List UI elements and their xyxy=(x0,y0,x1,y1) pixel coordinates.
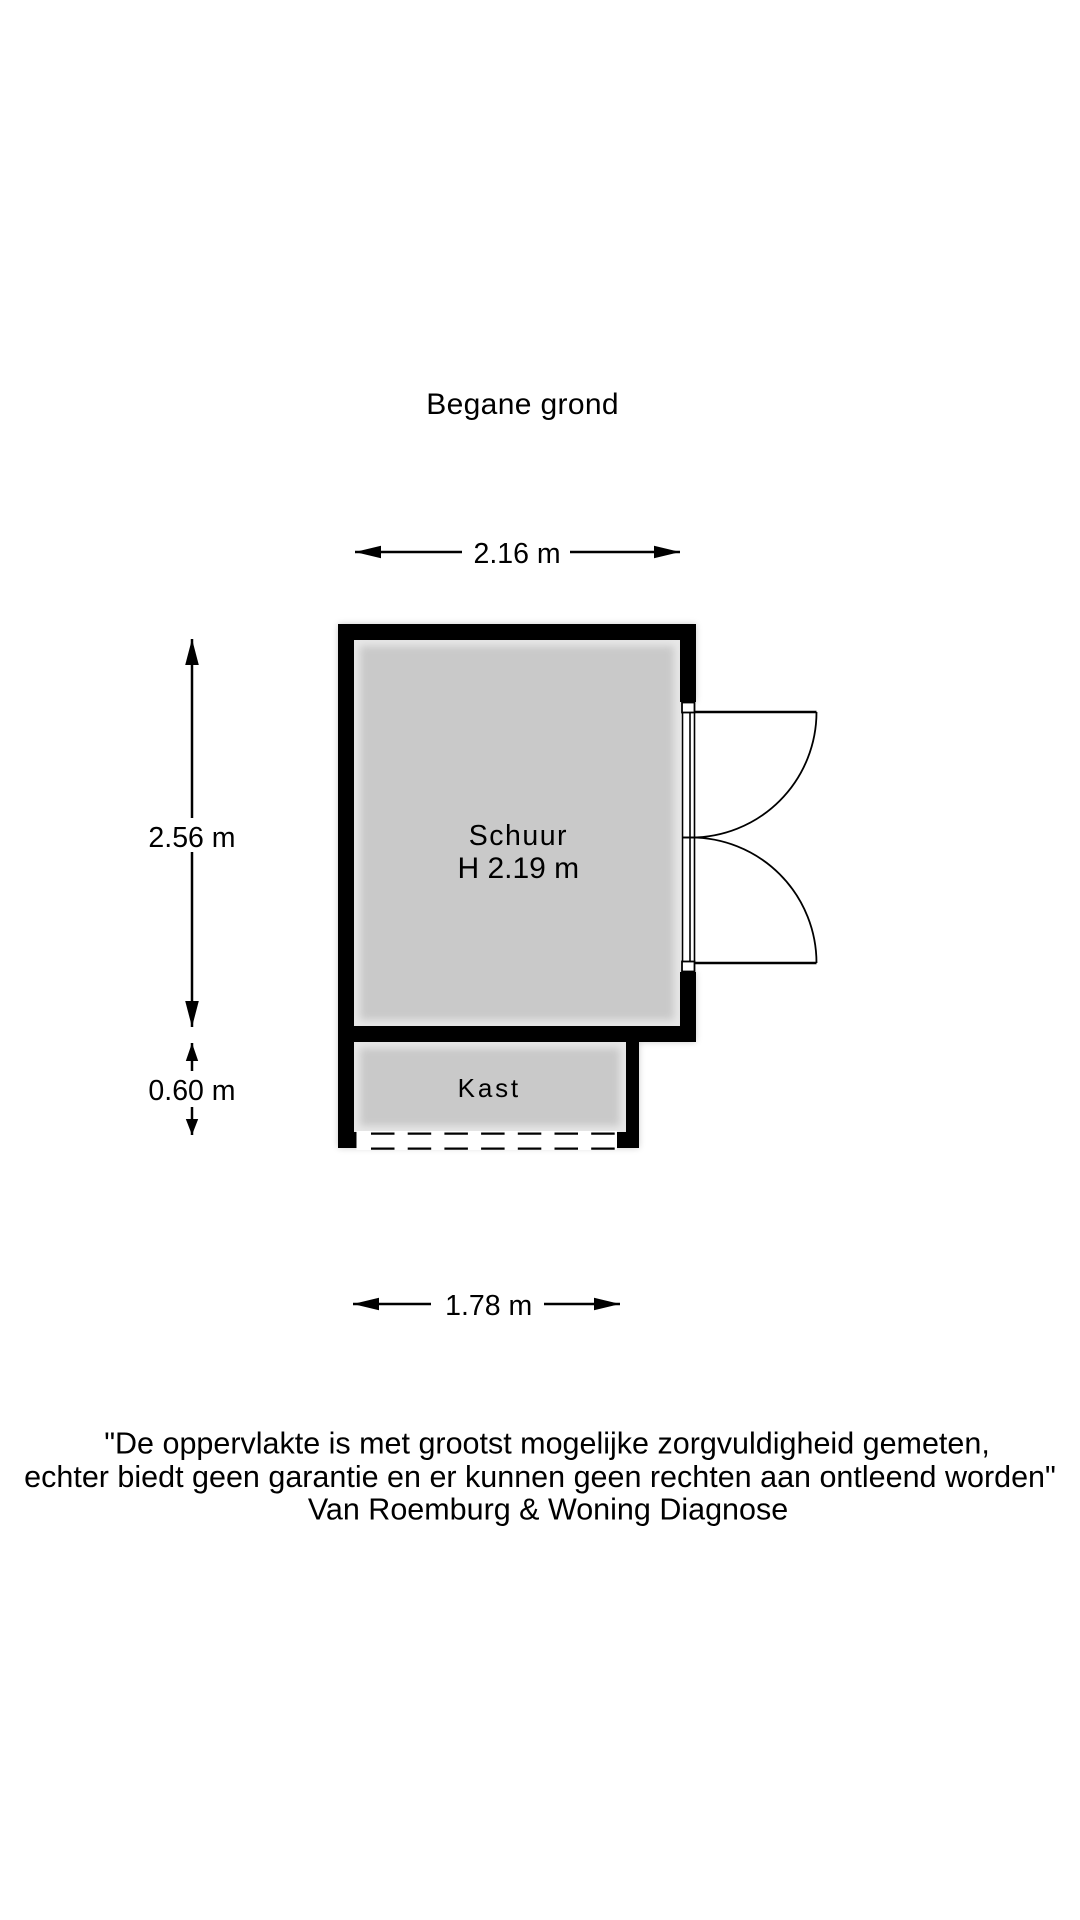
svg-text:2.56 m: 2.56 m xyxy=(148,822,235,854)
svg-text:1.78 m: 1.78 m xyxy=(445,1290,532,1322)
svg-text:Kast: Kast xyxy=(458,1073,521,1103)
svg-text:echter biedt geen garantie en: echter biedt geen garantie en er kunnen … xyxy=(24,1460,1056,1494)
svg-text:2.16 m: 2.16 m xyxy=(474,538,561,570)
svg-text:0.60 m: 0.60 m xyxy=(148,1075,235,1107)
svg-text:H 2.19 m: H 2.19 m xyxy=(457,852,579,885)
svg-text:Van Roemburg & Woning Diagnose: Van Roemburg & Woning Diagnose xyxy=(308,1493,788,1527)
svg-text:"De oppervlakte is met grootst: "De oppervlakte is met grootst mogelijke… xyxy=(104,1427,990,1461)
svg-text:Begane grond: Begane grond xyxy=(426,388,619,421)
svg-text:Schuur: Schuur xyxy=(469,820,568,852)
